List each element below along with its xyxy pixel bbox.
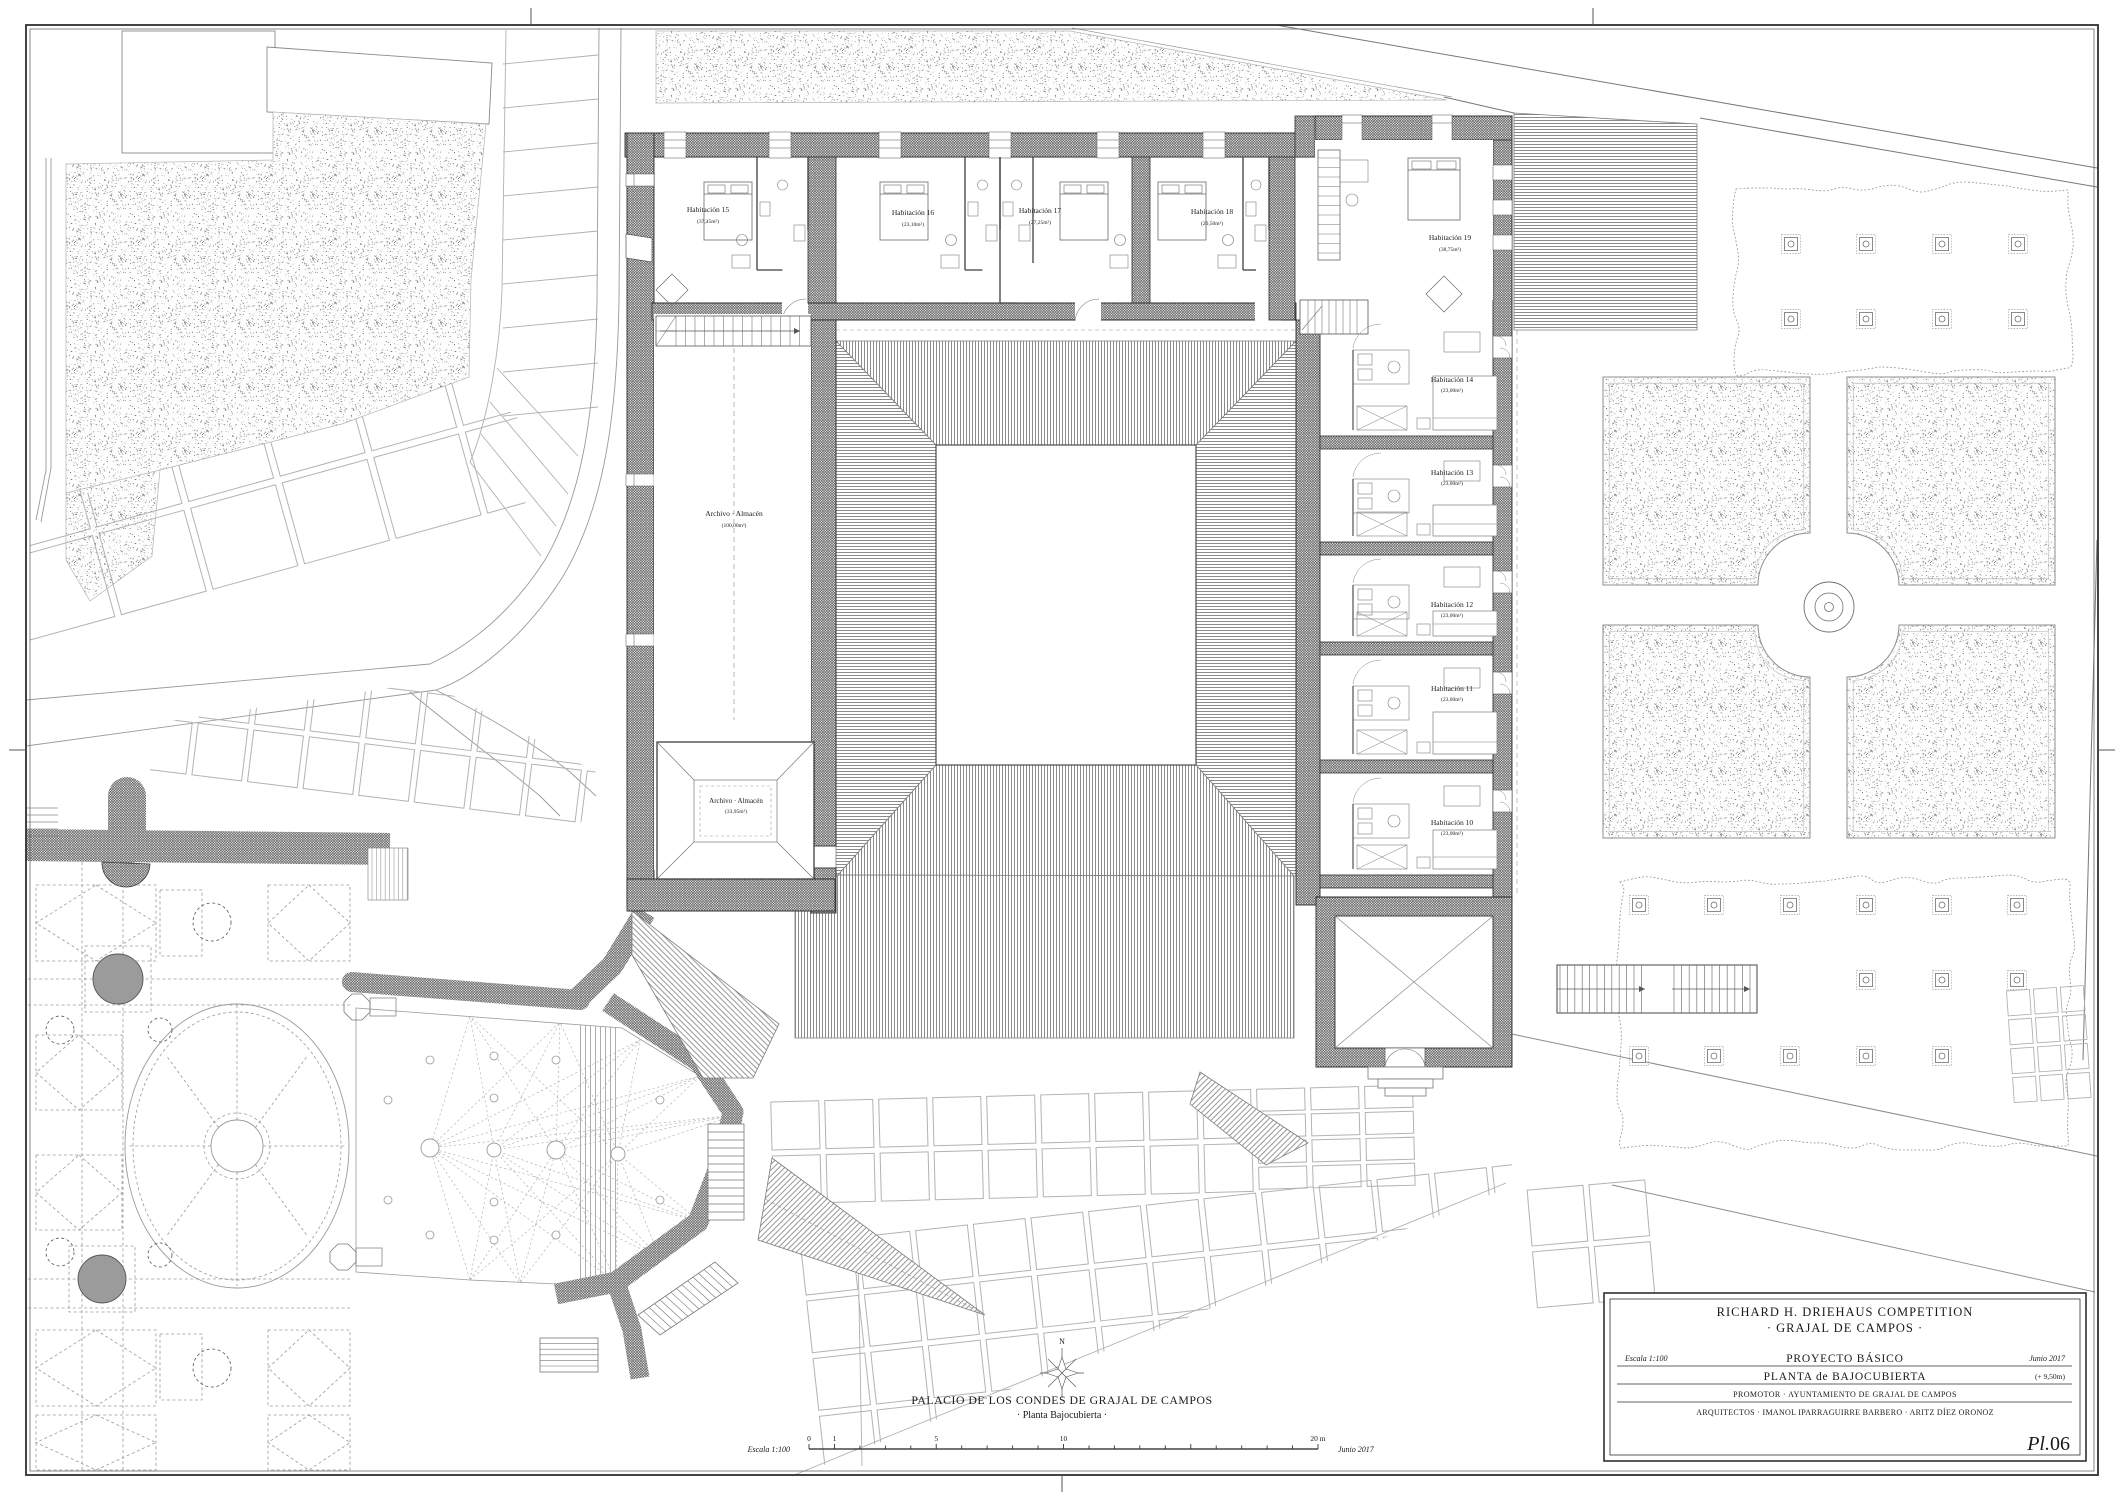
svg-text:(23,00m²): (23,00m²) xyxy=(1441,612,1463,619)
svg-text:Habitación 14: Habitación 14 xyxy=(1431,375,1474,384)
svg-text:Habitación 12: Habitación 12 xyxy=(1431,600,1474,609)
svg-text:(+ 9,50m): (+ 9,50m) xyxy=(2035,1372,2066,1381)
svg-text:Junio 2017: Junio 2017 xyxy=(1338,1445,1375,1454)
svg-text:Escala 1:100: Escala 1:100 xyxy=(1624,1354,1667,1363)
svg-text:Habitación 13: Habitación 13 xyxy=(1431,468,1474,477)
svg-text:PLANTA de BAJOCUBIERTA: PLANTA de BAJOCUBIERTA xyxy=(1764,1371,1927,1383)
svg-text:(38,75m²): (38,75m²) xyxy=(1439,246,1461,253)
svg-text:(23,10m²): (23,10m²) xyxy=(902,221,924,228)
svg-text:RICHARD H. DRIEHAUS COMPETITIO: RICHARD H. DRIEHAUS COMPETITION xyxy=(1717,1305,1974,1319)
svg-text:0: 0 xyxy=(807,1434,811,1443)
svg-text:PROYECTO BÁSICO: PROYECTO BÁSICO xyxy=(1786,1351,1904,1365)
svg-text:10: 10 xyxy=(1060,1434,1068,1443)
svg-text:(23,00m²): (23,00m²) xyxy=(1441,830,1463,837)
svg-text:ARQUITECTOS · IMANOL IPARRAGUI: ARQUITECTOS · IMANOL IPARRAGUIRRE BARBER… xyxy=(1696,1407,1994,1417)
svg-text:Habitación 15: Habitación 15 xyxy=(687,205,730,214)
svg-text:Junio 2017: Junio 2017 xyxy=(2029,1354,2066,1363)
svg-text:· GRAJAL DE CAMPOS ·: · GRAJAL DE CAMPOS · xyxy=(1767,1321,1923,1335)
svg-text:· Planta Bajocubierta ·: · Planta Bajocubierta · xyxy=(1017,1410,1107,1421)
svg-text:Habitación 16: Habitación 16 xyxy=(892,208,935,217)
svg-text:Archivo · Almacén: Archivo · Almacén xyxy=(709,797,763,805)
svg-text:(20,50m²): (20,50m²) xyxy=(1201,220,1223,227)
svg-text:N: N xyxy=(1059,1337,1065,1346)
svg-text:5: 5 xyxy=(934,1434,938,1443)
svg-text:(33,95m²): (33,95m²) xyxy=(725,808,747,815)
svg-text:Pl.06: Pl.06 xyxy=(2026,1433,2070,1455)
svg-text:Habitación 10: Habitación 10 xyxy=(1431,818,1474,827)
svg-text:(23,00m²): (23,00m²) xyxy=(1441,387,1463,394)
svg-text:PROMOTOR · AYUNTAMIENTO DE GRA: PROMOTOR · AYUNTAMIENTO DE GRAJAL DE CAM… xyxy=(1733,1390,1957,1399)
svg-text:(37,45m²): (37,45m²) xyxy=(697,218,719,225)
svg-text:Escala 1:100: Escala 1:100 xyxy=(747,1445,790,1454)
svg-text:(23,00m²): (23,00m²) xyxy=(1441,480,1463,487)
svg-text:(27,25m²): (27,25m²) xyxy=(1029,219,1051,226)
svg-text:(23,00m²): (23,00m²) xyxy=(1441,696,1463,703)
svg-text:PALACIO DE LOS CONDES DE GRAJA: PALACIO DE LOS CONDES DE GRAJAL DE CAMPO… xyxy=(911,1393,1212,1407)
svg-text:Habitación 11: Habitación 11 xyxy=(1431,684,1473,693)
svg-text:20 m: 20 m xyxy=(1310,1434,1325,1443)
svg-text:1: 1 xyxy=(833,1434,837,1443)
svg-text:Habitación 17: Habitación 17 xyxy=(1019,206,1062,215)
svg-text:Habitación 18: Habitación 18 xyxy=(1191,207,1234,216)
svg-text:Habitación 19: Habitación 19 xyxy=(1429,233,1472,242)
